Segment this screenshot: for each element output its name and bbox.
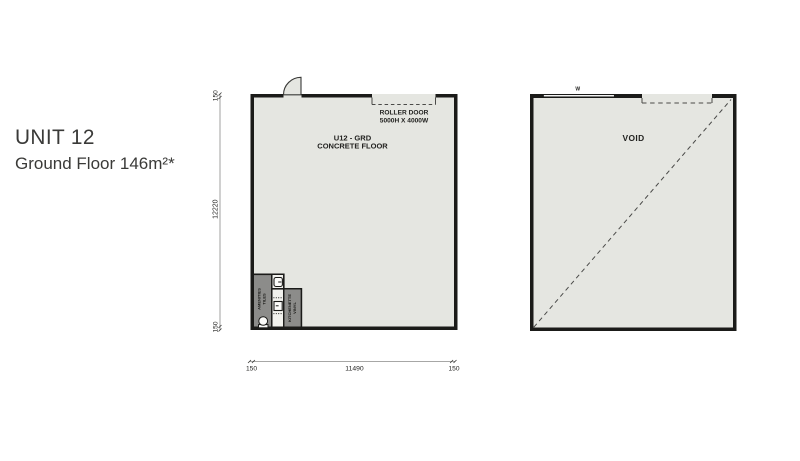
svg-text:150: 150: [246, 366, 257, 373]
svg-text:W: W: [575, 86, 580, 92]
svg-text:5000H X 4000W: 5000H X 4000W: [380, 118, 429, 125]
svg-text:150: 150: [448, 366, 459, 373]
svg-text:CONCRETE FLOOR: CONCRETE FLOOR: [317, 142, 388, 151]
svg-text:11490: 11490: [345, 366, 364, 373]
svg-text:12220: 12220: [212, 199, 219, 219]
svg-text:VOID: VOID: [622, 133, 644, 143]
svg-text:150: 150: [212, 90, 219, 101]
svg-text:ROLLER DOOR: ROLLER DOOR: [380, 110, 429, 117]
svg-text:150: 150: [212, 321, 219, 332]
